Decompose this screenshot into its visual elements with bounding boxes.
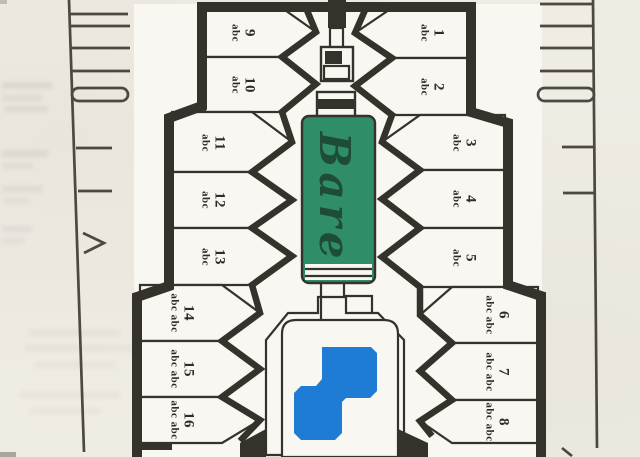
pond-bottom-band [305,264,372,280]
showthrough-line-3 [4,106,48,112]
showthrough-line-2 [2,95,42,101]
lot-12-label: 12abc [200,191,228,209]
right-road-end-tick [562,448,572,456]
lot-10-label: 10abc [230,76,258,94]
right-road-loop-tick [538,88,594,101]
right-road-ticks [540,4,595,193]
showthrough-line-10 [30,330,120,336]
pond-handwriting: Bare [310,131,359,264]
corridor-connector [330,28,343,48]
showthrough-line-9 [2,238,24,244]
paper-edge-mark-top-left [0,0,7,4]
site-plan-map: 1abc2abc3abc4abc5abc6abc abc7abc abc8abc… [0,0,640,457]
showthrough-line-1 [2,82,52,89]
paper-edge-mark-bottom-left [0,452,16,457]
showthrough-line-6 [2,186,42,192]
showthrough-line-12 [35,362,115,368]
right-road-line [593,0,597,448]
scanned-site-plan-page: 1abc2abc3abc4abc5abc6abc abc7abc abc8abc… [0,0,640,457]
showthrough-line-7 [4,198,30,204]
showthrough-line-8 [2,226,32,232]
entrance-road-stub [328,0,346,28]
lot-11-label: 11abc [200,134,228,152]
showthrough-line-5 [3,163,33,169]
left-road [69,0,130,452]
showthrough-line-14 [30,408,100,414]
right-road [538,0,597,456]
pond: Bare [302,116,375,283]
left-road-flag-marker [83,233,104,253]
lot-13-label: 13abc [200,248,228,266]
showthrough-line-4 [2,150,48,157]
left-road-loop-tick [72,88,128,101]
left-road-ticks [70,14,130,191]
gate-structure-lower [317,92,355,117]
gate-structure-upper [321,47,353,81]
left-road-line [69,0,84,452]
showthrough-line-13 [20,392,120,398]
page-showthrough-text [2,82,135,414]
